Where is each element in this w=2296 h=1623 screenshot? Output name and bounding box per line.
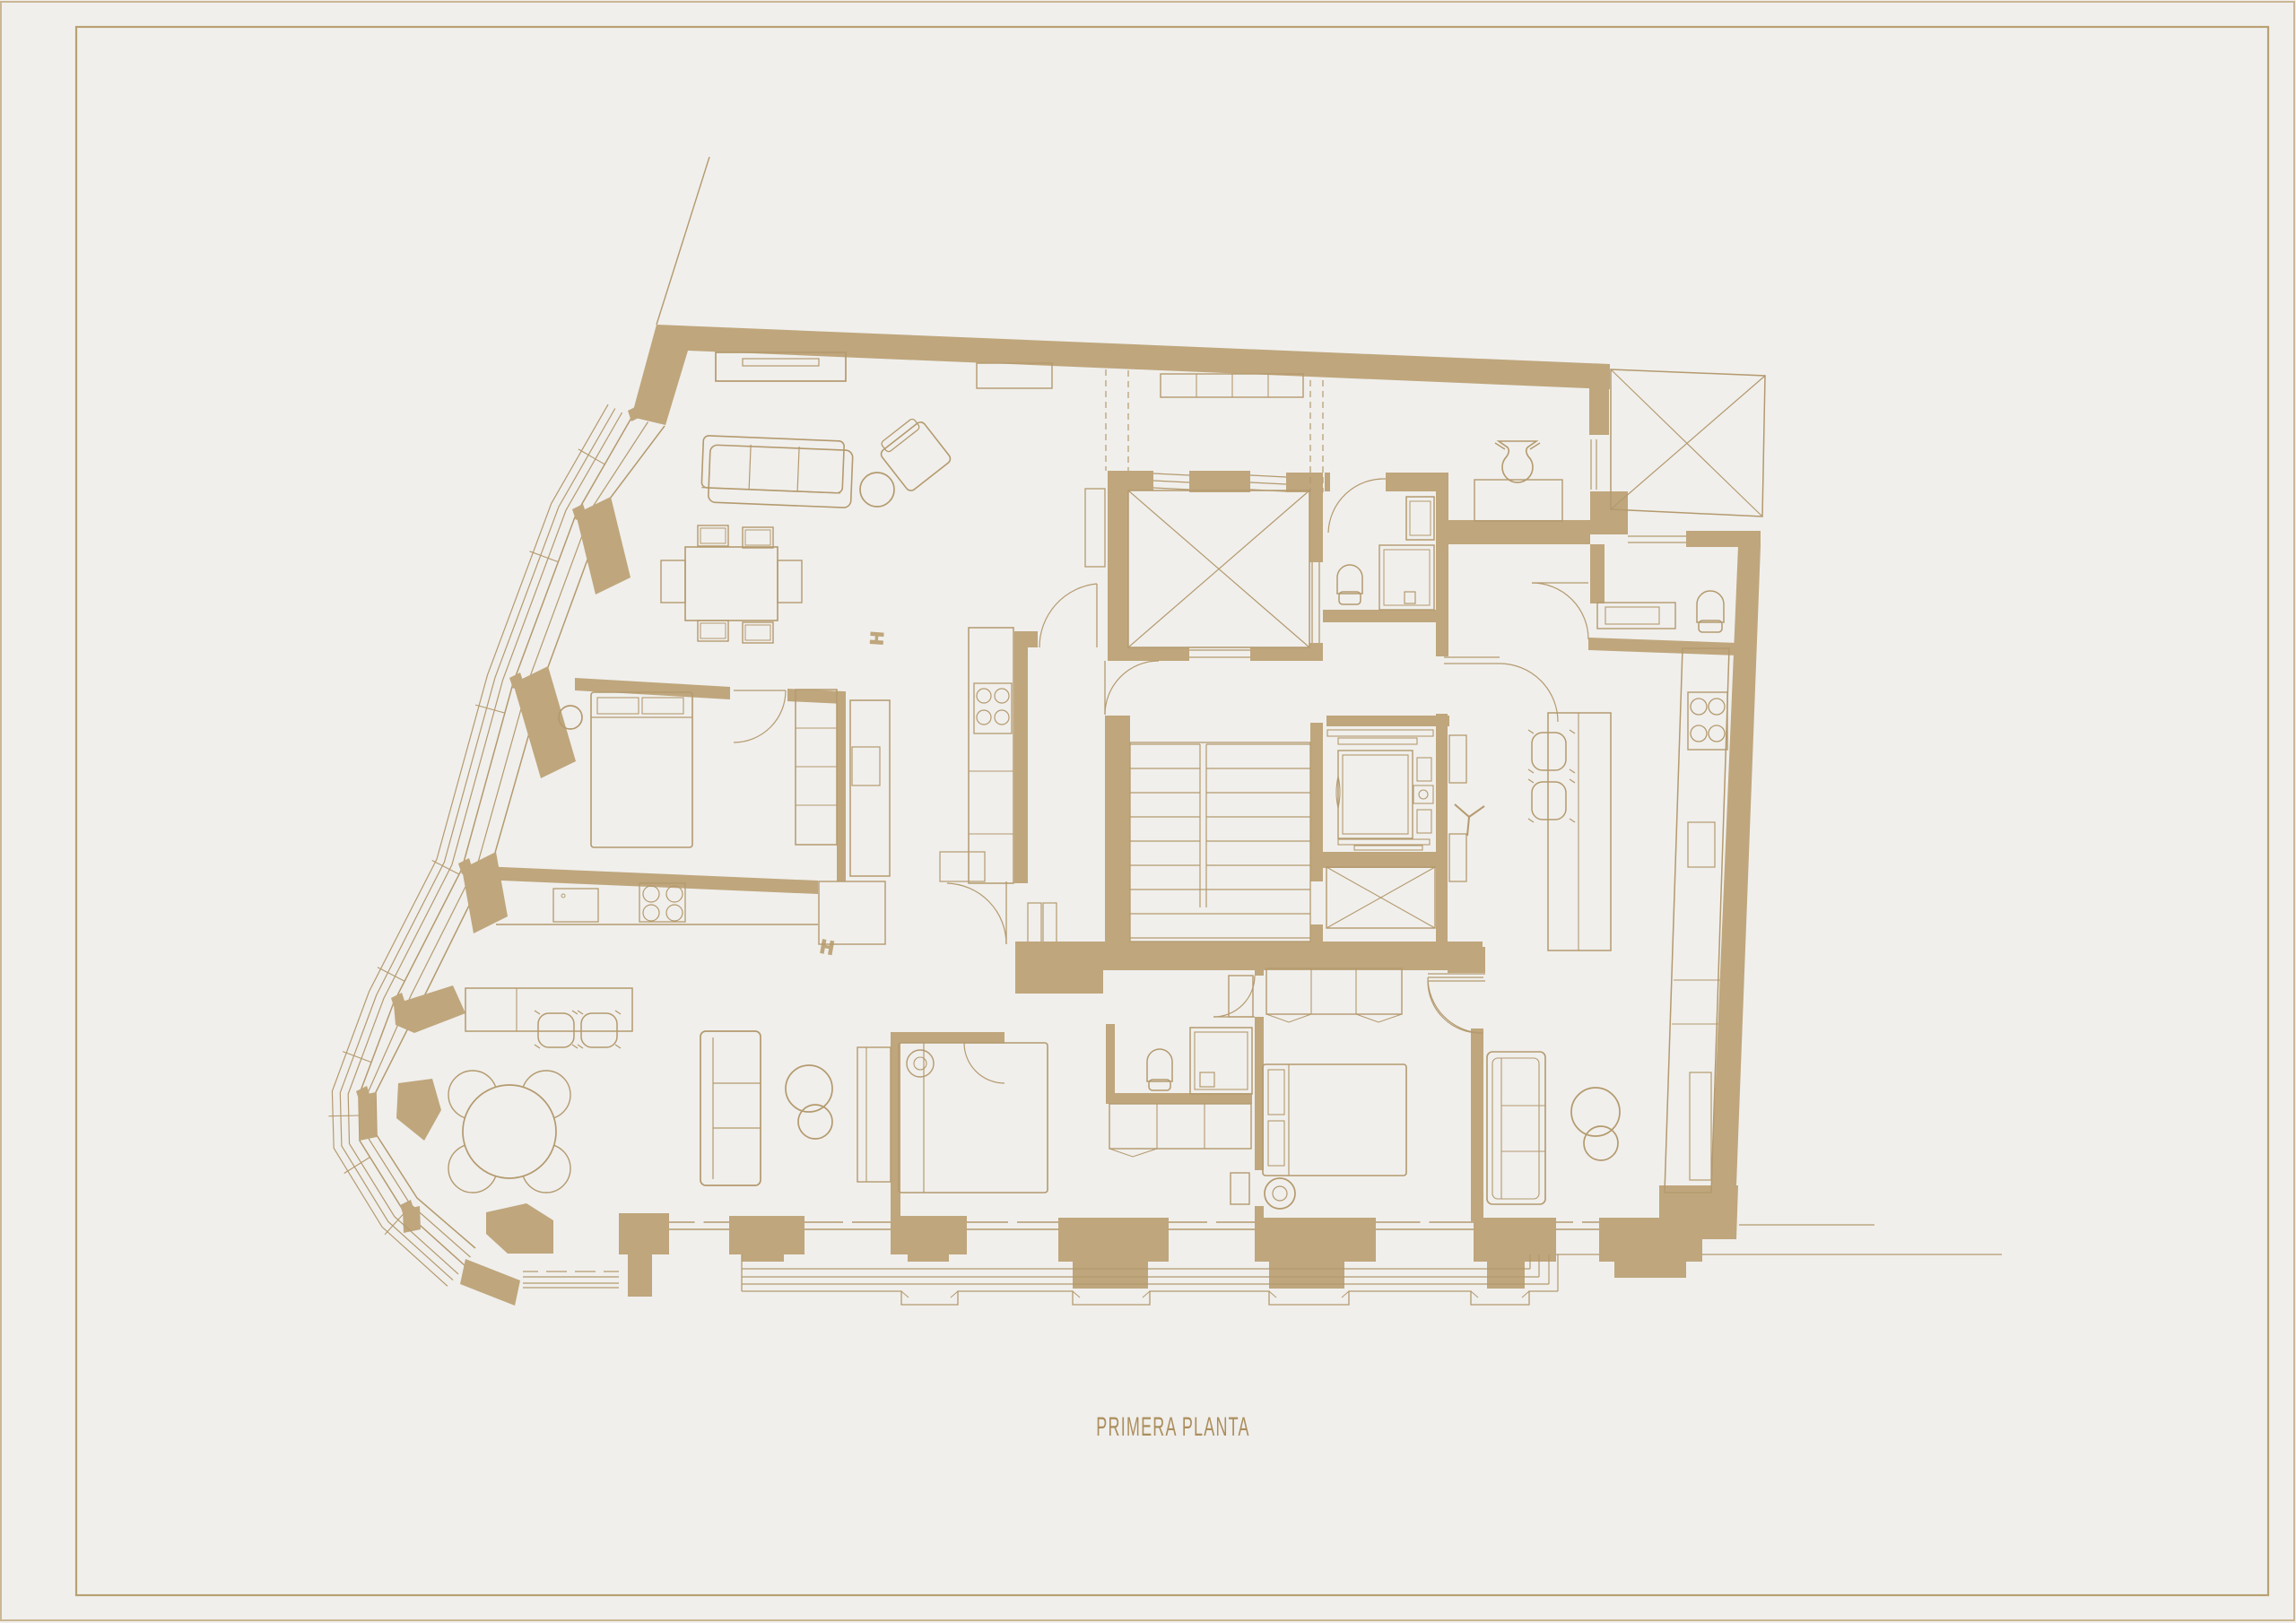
svg-text:PRIMERA PLANTA: PRIMERA PLANTA — [1096, 1413, 1249, 1443]
